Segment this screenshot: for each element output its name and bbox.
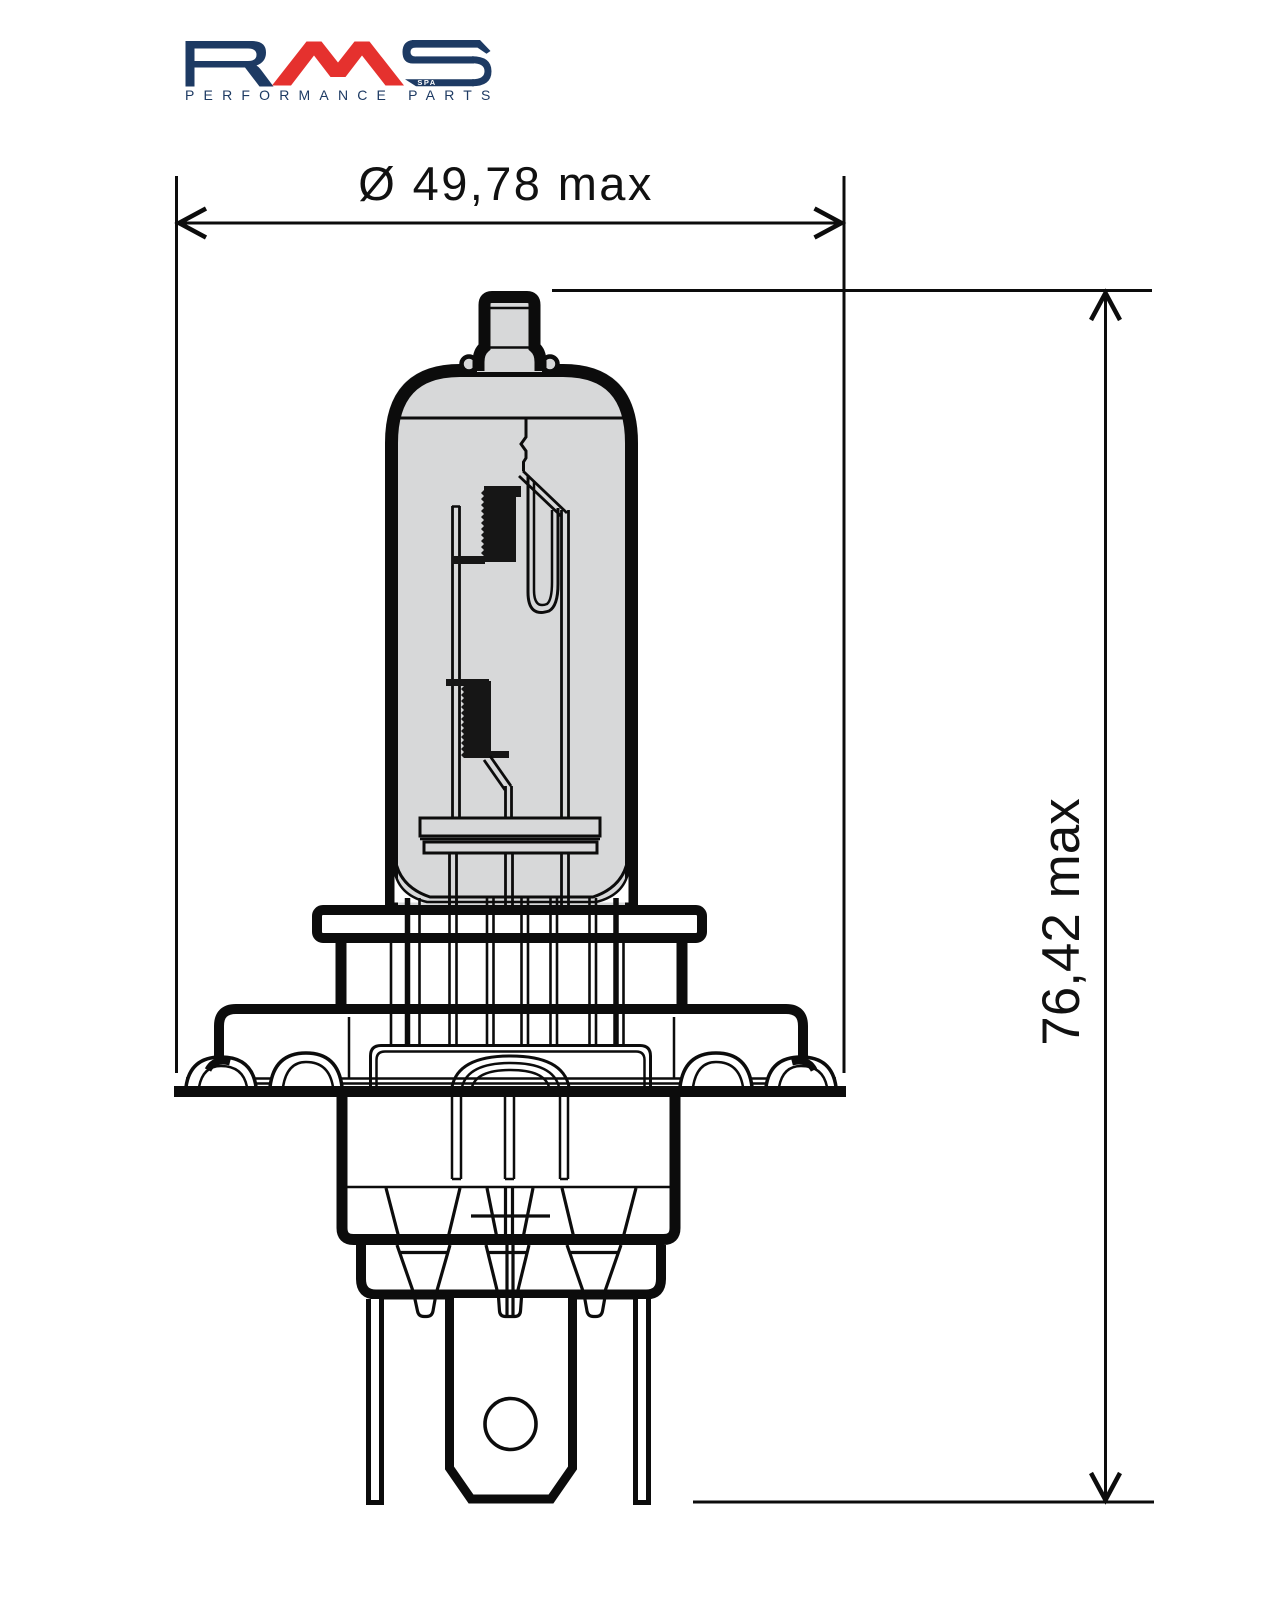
svg-text:PERFORMANCE PARTS: PERFORMANCE PARTS xyxy=(185,87,500,103)
svg-text:SPA: SPA xyxy=(417,78,436,87)
svg-text:76,42 max: 76,42 max xyxy=(1032,798,1091,1045)
svg-text:Ø 49,78 max: Ø 49,78 max xyxy=(358,157,653,210)
